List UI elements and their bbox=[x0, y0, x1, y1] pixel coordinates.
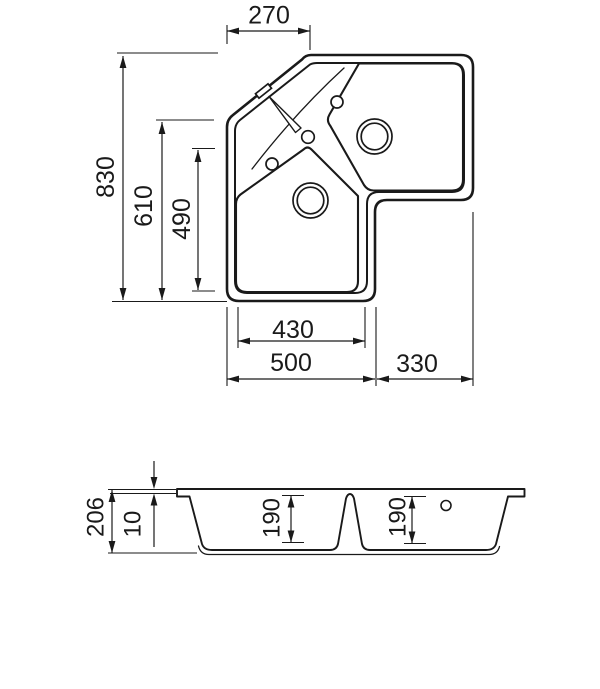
right-bowl-outline bbox=[328, 64, 463, 191]
dim-500: 500 bbox=[227, 349, 375, 382]
section-faucet-hole bbox=[441, 501, 451, 511]
dim-label-330: 330 bbox=[396, 350, 438, 378]
dim-label-500: 500 bbox=[270, 349, 312, 377]
dim-label-206: 206 bbox=[83, 497, 110, 537]
lower-bowl-outline bbox=[236, 148, 358, 293]
section-profile bbox=[177, 489, 525, 550]
dim-label-610: 610 bbox=[130, 185, 158, 227]
dim-10: 10 bbox=[120, 461, 158, 547]
dim-490: 490 bbox=[168, 149, 215, 292]
right-bowl-drain-inner bbox=[361, 123, 388, 150]
tap-hole-3 bbox=[266, 158, 278, 170]
lower-bowl-drain-inner bbox=[297, 187, 324, 214]
dim-label-490: 490 bbox=[168, 198, 196, 240]
dim-label-10: 10 bbox=[120, 511, 147, 538]
dim-label-270: 270 bbox=[248, 2, 290, 30]
dim-label-430: 430 bbox=[272, 316, 314, 344]
dim-430: 430 bbox=[238, 316, 365, 344]
tap-hole-2 bbox=[302, 131, 315, 144]
sink-technical-drawing: 270 830 610 490 bbox=[0, 0, 600, 689]
dim-830: 830 bbox=[92, 53, 227, 302]
dim-label-190-left: 190 bbox=[259, 498, 286, 538]
dim-270: 270 bbox=[227, 2, 310, 51]
dim-label-190-right: 190 bbox=[385, 497, 412, 537]
section-view: 206 10 190 190 bbox=[83, 461, 525, 555]
tap-hole-1 bbox=[331, 96, 343, 108]
dim-330: 330 bbox=[377, 350, 473, 382]
dim-label-830: 830 bbox=[92, 156, 120, 198]
technical-drawing-page: 270 830 610 490 bbox=[0, 0, 600, 689]
drainer-spike bbox=[269, 97, 301, 133]
top-view: 270 830 610 490 bbox=[92, 2, 473, 387]
